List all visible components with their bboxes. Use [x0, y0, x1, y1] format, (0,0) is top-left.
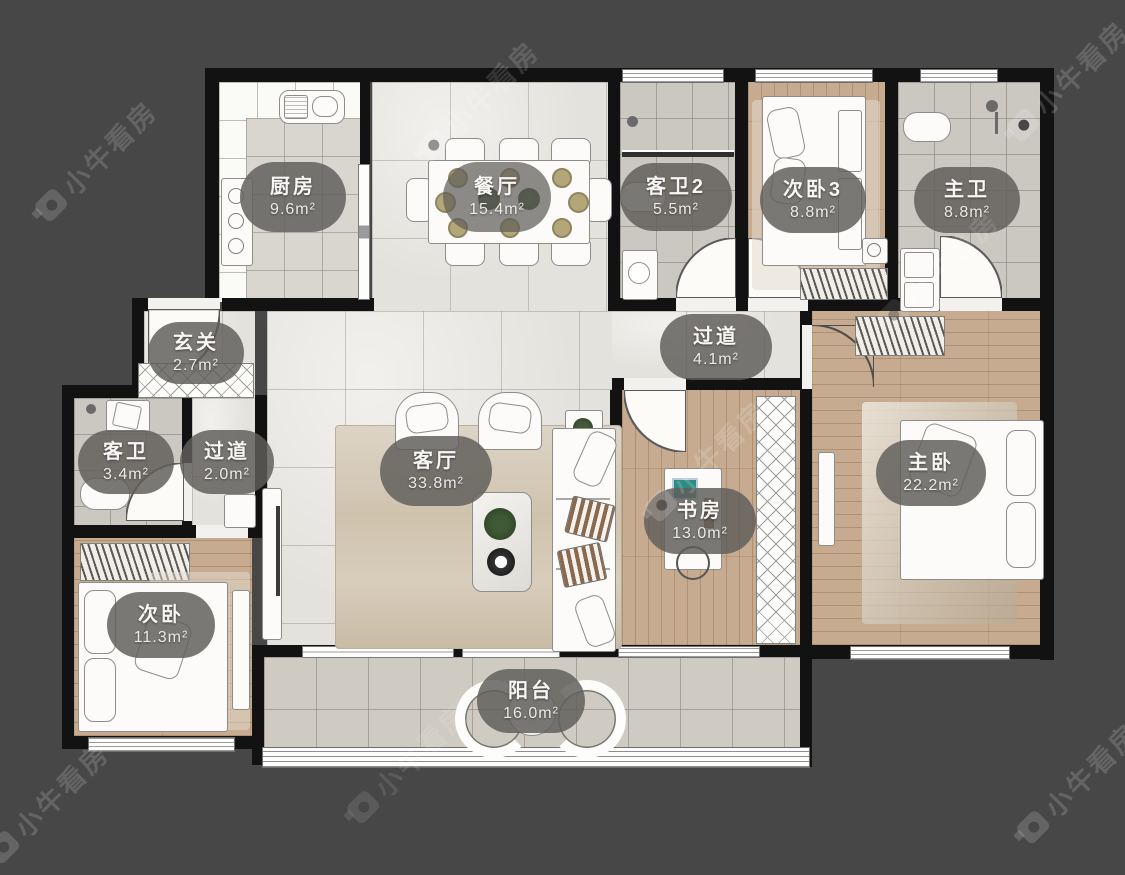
tv-cabinet-icon [818, 452, 835, 546]
plate-icon [552, 168, 572, 188]
plant-icon [484, 508, 516, 540]
watermark-text: 小牛看房 [53, 91, 165, 203]
room-label-guest-bath: 客卫 3.4m² [78, 430, 174, 494]
room-name: 书房 [677, 499, 723, 524]
room-label-bedroom-2: 次卧 11.3m² [107, 592, 215, 658]
master-bedroom-door-opening [802, 325, 812, 389]
blanket-icon [838, 110, 862, 172]
room-area: 8.8m² [790, 203, 836, 222]
room-label-corridor-2: 过道 2.0m² [180, 430, 274, 494]
room-area: 13.0m² [672, 524, 728, 543]
room-area: 5.5m² [653, 200, 699, 219]
watermark: 小牛看房 [27, 91, 165, 229]
dining-chair [588, 178, 612, 222]
room-label-guest-bath-2: 客卫2 5.5m² [620, 163, 732, 231]
room-label-balcony: 阳台 16.0m² [477, 669, 585, 733]
room-area: 11.3m² [134, 628, 189, 647]
room-name: 次卧 [138, 603, 184, 628]
wardrobe-icon [800, 268, 888, 300]
room-name: 过道 [204, 440, 250, 465]
window [920, 69, 998, 83]
window [850, 646, 1010, 660]
room-area: 15.4m² [469, 200, 525, 219]
tv-icon [276, 506, 280, 596]
shower-stem-icon [995, 112, 998, 134]
room-area: 2.0m² [204, 465, 250, 484]
room-label-study: 书房 13.0m² [644, 488, 756, 554]
wall [205, 68, 219, 311]
room-name: 主卧 [908, 451, 954, 476]
room-area: 2.7m² [173, 356, 219, 375]
wardrobe-icon [855, 316, 945, 356]
watermark-camera-icon [1014, 808, 1051, 845]
burner-icon [228, 238, 244, 254]
study-door-arc [624, 390, 686, 452]
room-area: 3.4m² [103, 465, 149, 484]
room-area: 16.0m² [503, 704, 559, 723]
room-area: 33.8m² [408, 474, 464, 493]
watermark-camera-icon [0, 828, 21, 865]
room-label-dining: 餐厅 15.4m² [443, 162, 551, 232]
cushion-icon [487, 401, 532, 435]
shower-head-icon [86, 404, 96, 414]
watermark: 小牛看房 [1009, 713, 1125, 851]
burner-icon [228, 213, 244, 229]
room-label-corridor: 过道 4.1m² [660, 314, 772, 380]
watermark-camera-icon [344, 788, 381, 825]
basin-icon [904, 282, 934, 308]
room-area: 22.2m² [903, 476, 959, 495]
room-name: 客卫2 [646, 175, 706, 200]
shower-rail-icon [622, 150, 734, 157]
watermark: 小牛看房 [0, 733, 117, 871]
wall [360, 82, 370, 166]
room-label-living: 客厅 33.8m² [380, 436, 492, 506]
room-name: 客厅 [413, 449, 459, 474]
room-label-master-bath: 主卫 8.8m² [914, 167, 1020, 233]
room-name: 主卫 [944, 178, 990, 203]
room-name: 阳台 [508, 679, 554, 704]
bookshelf-icon [756, 396, 796, 644]
room-name: 次卧3 [783, 178, 843, 203]
master-bath-door-arc [940, 236, 1002, 298]
master-bath-door-opening [940, 298, 1002, 311]
wall [735, 82, 748, 311]
sink-drainer-icon [284, 95, 308, 119]
wall [222, 298, 374, 311]
watermark-text: 小牛看房 [1035, 713, 1125, 825]
study-door-opening [624, 378, 686, 390]
balcony-window [262, 747, 810, 768]
shower-head-icon [627, 116, 638, 127]
tv-cabinet-icon [232, 590, 250, 710]
shower-head-icon [986, 100, 998, 112]
basin-icon [628, 262, 650, 284]
room-label-kitchen: 厨房 9.6m² [240, 162, 346, 232]
window [622, 69, 724, 83]
room-label-foyer: 玄关 2.7m² [148, 322, 244, 384]
guest-bath-2-door-arc [676, 238, 736, 298]
watermark-camera-icon [32, 186, 69, 223]
room-label-bedroom-3: 次卧3 8.8m² [760, 167, 866, 233]
room-name: 餐厅 [474, 175, 520, 200]
window [618, 646, 760, 658]
floor-drain-icon [867, 243, 881, 257]
wall [62, 385, 144, 398]
basin-icon [904, 252, 934, 278]
dining-chair [406, 178, 430, 222]
tray-icon [487, 548, 515, 576]
hall-cabinet-icon [224, 494, 256, 528]
pillow-icon [1006, 430, 1036, 496]
room-name: 玄关 [173, 331, 219, 356]
bedroom-3-door-opening [748, 298, 808, 311]
room-name: 过道 [693, 325, 739, 350]
window [755, 69, 873, 83]
plate-icon [568, 192, 589, 213]
wall [62, 385, 74, 749]
toilet-icon [903, 112, 951, 142]
pillow-icon [84, 658, 116, 722]
room-area: 8.8m² [944, 203, 990, 222]
room-area: 4.1m² [693, 350, 739, 369]
plate-icon [552, 218, 572, 238]
coffee-table [472, 492, 532, 592]
room-label-master-bedroom: 主卧 22.2m² [876, 440, 986, 506]
sink-basin-icon [312, 96, 338, 117]
room-area: 9.6m² [270, 200, 316, 219]
basin-icon [112, 402, 142, 431]
room-name: 厨房 [270, 175, 316, 200]
pillow-icon [1006, 502, 1036, 568]
window [88, 737, 235, 752]
floorplan-canvas: 厨房 9.6m² 餐厅 15.4m² 客卫2 5.5m² 次卧3 8.8m² 主… [0, 0, 1125, 843]
guest-bath-2-door-opening [676, 298, 736, 311]
room-name: 客卫 [103, 440, 149, 465]
kitchen-sliding-door [358, 164, 370, 300]
